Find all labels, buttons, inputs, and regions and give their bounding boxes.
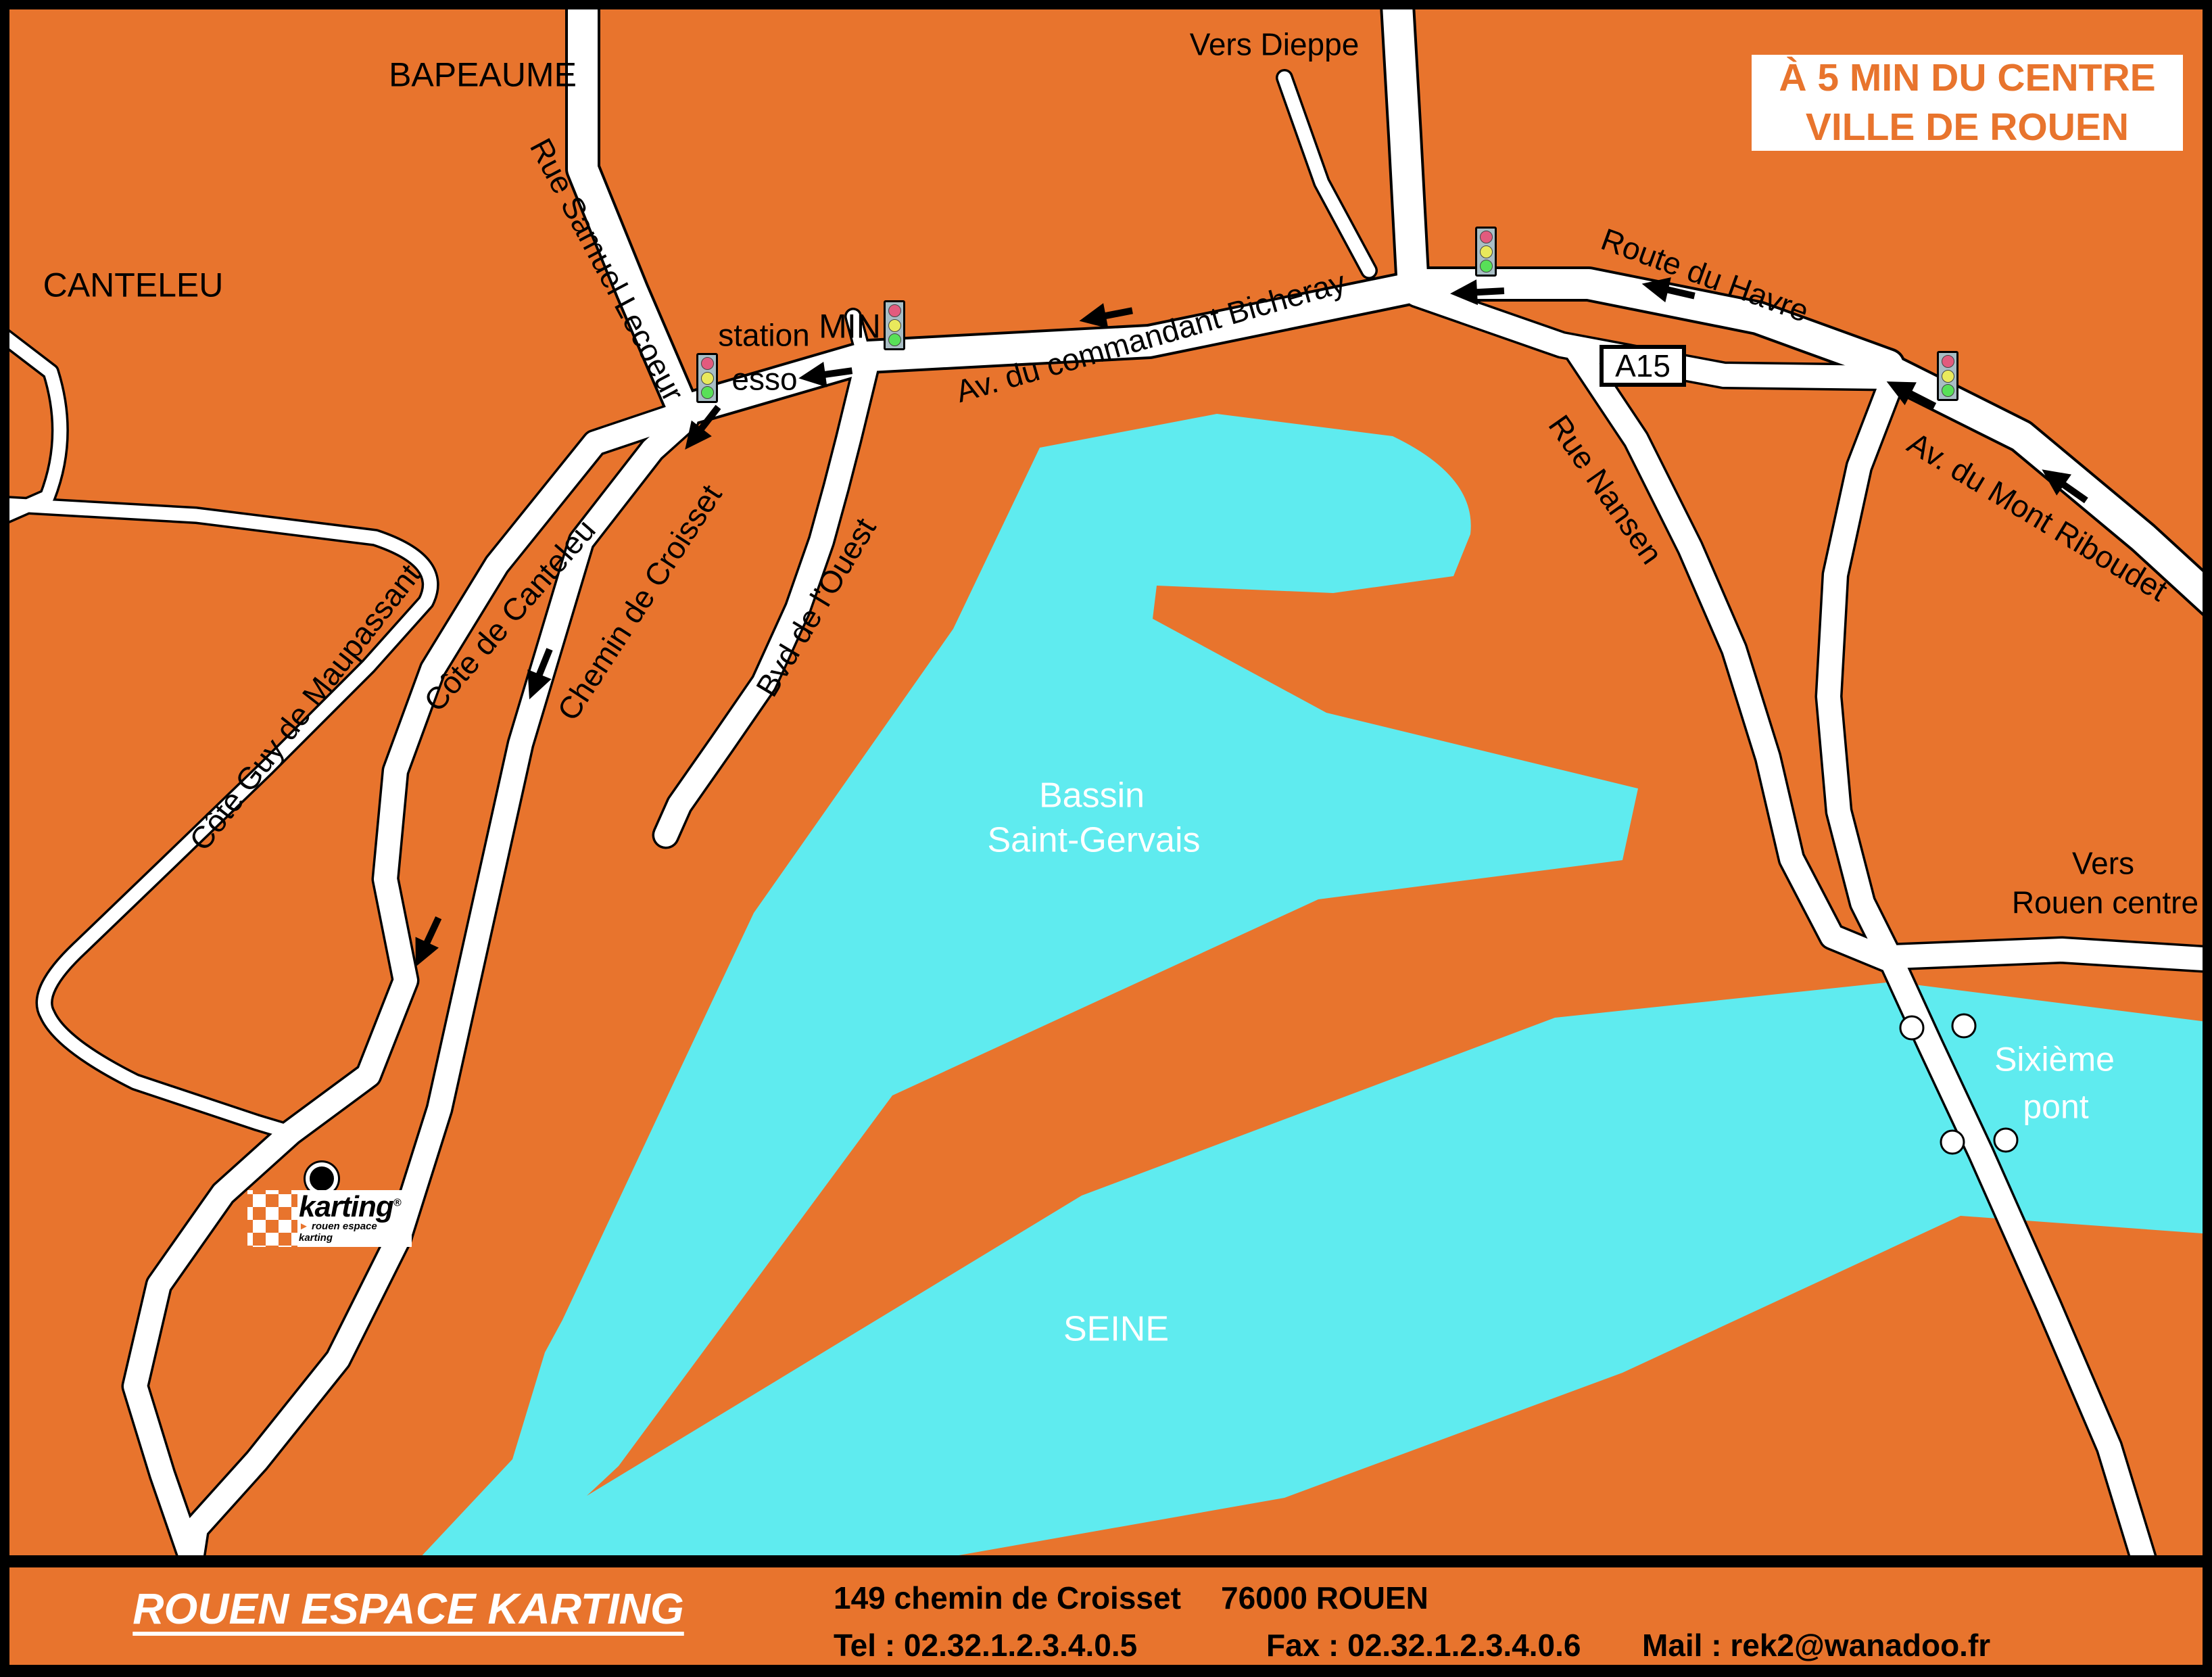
registered-mark: ® [393,1198,401,1209]
label-esso: esso [731,362,797,397]
checkered-flag-icon [247,1190,297,1247]
label-min: MIN [819,308,881,346]
a15-sign-text: A15 [1615,348,1670,384]
footer-company-name: ROUEN ESPACE KARTING [70,1584,746,1634]
logo-tagline: ► rouen espace karting [299,1221,412,1244]
title-line1: À 5 MIN DU CENTRE [1779,53,2155,103]
footer-fax: Fax : 02.32.1.2.3.4.0.6 [1266,1627,1581,1663]
label-vers-rouen-line2: Rouen centre [2012,886,2198,920]
traffic-light-icon [1475,227,1497,277]
bridge-pier-icon [1952,1014,1975,1037]
a15-road-sign: A15 [1600,345,1686,387]
map-canvas: BAPEAUME CANTELEU Vers Dieppe station es… [9,9,2203,1555]
footer-address-city: 76000 ROUEN [1221,1580,1428,1616]
road-vers-dieppe [1397,9,1413,287]
bridge-pier-icon [1994,1129,2017,1152]
road-vers-rouen-centre [1893,950,2203,960]
footer-tel: Tel : 02.32.1.2.3.4.0.5 [834,1627,1137,1663]
bullet-icon: ► [299,1221,309,1232]
label-bassin-line2: Saint-Gervais [988,821,1201,859]
label-bassin-line1: Bassin [1039,776,1145,815]
label-canteleu: CANTELEU [43,267,224,304]
footer-mail: Mail : rek2@wanadoo.fr [1642,1627,1990,1663]
traffic-light-icon [884,300,905,350]
title-box: À 5 MIN DU CENTRE VILLE DE ROUEN [1746,49,2189,157]
label-sixieme-pont-line2: pont [2023,1089,2088,1126]
label-sixieme-pont-line1: Sixième [1994,1041,2115,1079]
map-document: BAPEAUME CANTELEU Vers Dieppe station es… [0,0,2212,1677]
bridge-pier-icon [1900,1016,1923,1039]
logo-brand: karting® [299,1194,412,1221]
traffic-light-icon [1937,351,1958,401]
traffic-light-icon [696,353,718,403]
bridge-pier-icon [1941,1131,1964,1154]
label-bapeaume: BAPEAUME [389,57,577,94]
water-seine-and-bassin [419,414,2203,1555]
label-station: station [718,318,810,353]
label-vers-rouen-line1: Vers [2072,847,2134,881]
title-line2: VILLE DE ROUEN [1806,103,2129,152]
footer-bar: ROUEN ESPACE KARTING 149 chemin de Crois… [9,1567,2203,1665]
label-vers-dieppe: Vers Dieppe [1190,28,1360,62]
karting-logo: karting® ► rouen espace karting [247,1190,412,1247]
footer-address-street: 149 chemin de Croisset [834,1580,1181,1616]
label-seine: SEINE [1063,1310,1169,1348]
